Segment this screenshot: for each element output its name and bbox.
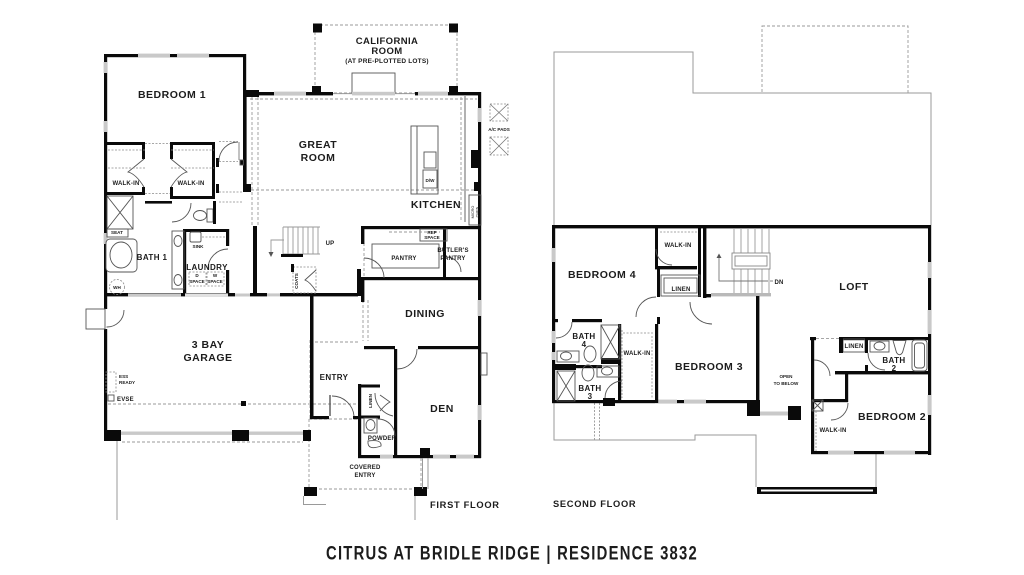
svg-text:ENTRY: ENTRY	[320, 373, 349, 382]
svg-text:W: W	[213, 273, 218, 278]
svg-text:BEDROOM 4: BEDROOM 4	[568, 269, 636, 281]
svg-text:MICRO: MICRO	[471, 206, 475, 219]
svg-text:UP: UP	[326, 241, 335, 247]
svg-text:LAUNDRY: LAUNDRY	[186, 263, 228, 272]
svg-text:BATH 1: BATH 1	[137, 253, 168, 262]
svg-text:BUTLER'S: BUTLER'S	[437, 248, 468, 254]
svg-text:ROOM: ROOM	[371, 46, 402, 57]
svg-text:ENTRY: ENTRY	[354, 473, 375, 479]
svg-text:OVEN: OVEN	[476, 206, 480, 217]
svg-text:FIRST FLOOR: FIRST FLOOR	[430, 500, 500, 510]
svg-text:LINEN: LINEN	[368, 393, 373, 407]
svg-text:COATS: COATS	[294, 273, 299, 289]
svg-text:BEDROOM 3: BEDROOM 3	[675, 361, 743, 373]
svg-text:EVSE: EVSE	[117, 397, 134, 403]
svg-text:COVERED: COVERED	[349, 465, 381, 471]
svg-text:WH: WH	[113, 285, 121, 290]
svg-text:DN: DN	[774, 280, 783, 286]
svg-text:SECOND FLOOR: SECOND FLOOR	[553, 499, 636, 509]
svg-text:(AT PRE-PLOTTED LOTS): (AT PRE-PLOTTED LOTS)	[345, 58, 429, 65]
svg-text:POWDER: POWDER	[368, 436, 397, 442]
svg-text:KITCHEN: KITCHEN	[411, 199, 461, 211]
svg-text:SPACE: SPACE	[424, 235, 440, 240]
svg-text:3: 3	[588, 392, 593, 401]
svg-text:A/C PADS: A/C PADS	[488, 127, 510, 132]
svg-text:DINING: DINING	[405, 308, 445, 320]
svg-text:ROOM: ROOM	[301, 152, 336, 164]
svg-text:WALK-IN: WALK-IN	[623, 351, 650, 357]
svg-text:D/W: D/W	[426, 178, 436, 183]
svg-text:WALK-IN: WALK-IN	[664, 243, 691, 249]
svg-text:SINK: SINK	[193, 244, 205, 249]
svg-text:PANTRY: PANTRY	[440, 256, 465, 262]
svg-text:BEDROOM 2: BEDROOM 2	[858, 411, 926, 423]
svg-text:BEDROOM 1: BEDROOM 1	[138, 89, 206, 101]
svg-text:WALK-IN: WALK-IN	[177, 181, 204, 187]
svg-text:WALK-IN: WALK-IN	[819, 428, 846, 434]
svg-text:SPACE: SPACE	[207, 279, 223, 284]
svg-text:SEAT: SEAT	[111, 230, 123, 235]
svg-text:DEN: DEN	[430, 403, 454, 415]
svg-text:2: 2	[892, 364, 897, 373]
svg-text:3 BAY: 3 BAY	[192, 339, 224, 351]
svg-text:GREAT: GREAT	[299, 139, 338, 151]
svg-text:TO BELOW: TO BELOW	[774, 381, 799, 386]
svg-text:LOFT: LOFT	[839, 281, 868, 293]
svg-text:LINEN: LINEN	[845, 344, 864, 350]
svg-text:ESS: ESS	[119, 374, 128, 379]
svg-text:WALK-IN: WALK-IN	[112, 181, 139, 187]
svg-text:OPEN: OPEN	[779, 374, 793, 379]
svg-text:CITRUS AT BRIDLE RIDGE | RESID: CITRUS AT BRIDLE RIDGE | RESIDENCE 3832	[326, 544, 698, 565]
svg-text:SPACE: SPACE	[189, 279, 205, 284]
svg-text:PANTRY: PANTRY	[391, 256, 416, 262]
svg-text:4: 4	[582, 340, 587, 349]
svg-text:GARAGE: GARAGE	[183, 352, 232, 364]
svg-text:READY: READY	[119, 380, 135, 385]
svg-text:LINEN: LINEN	[672, 287, 691, 293]
